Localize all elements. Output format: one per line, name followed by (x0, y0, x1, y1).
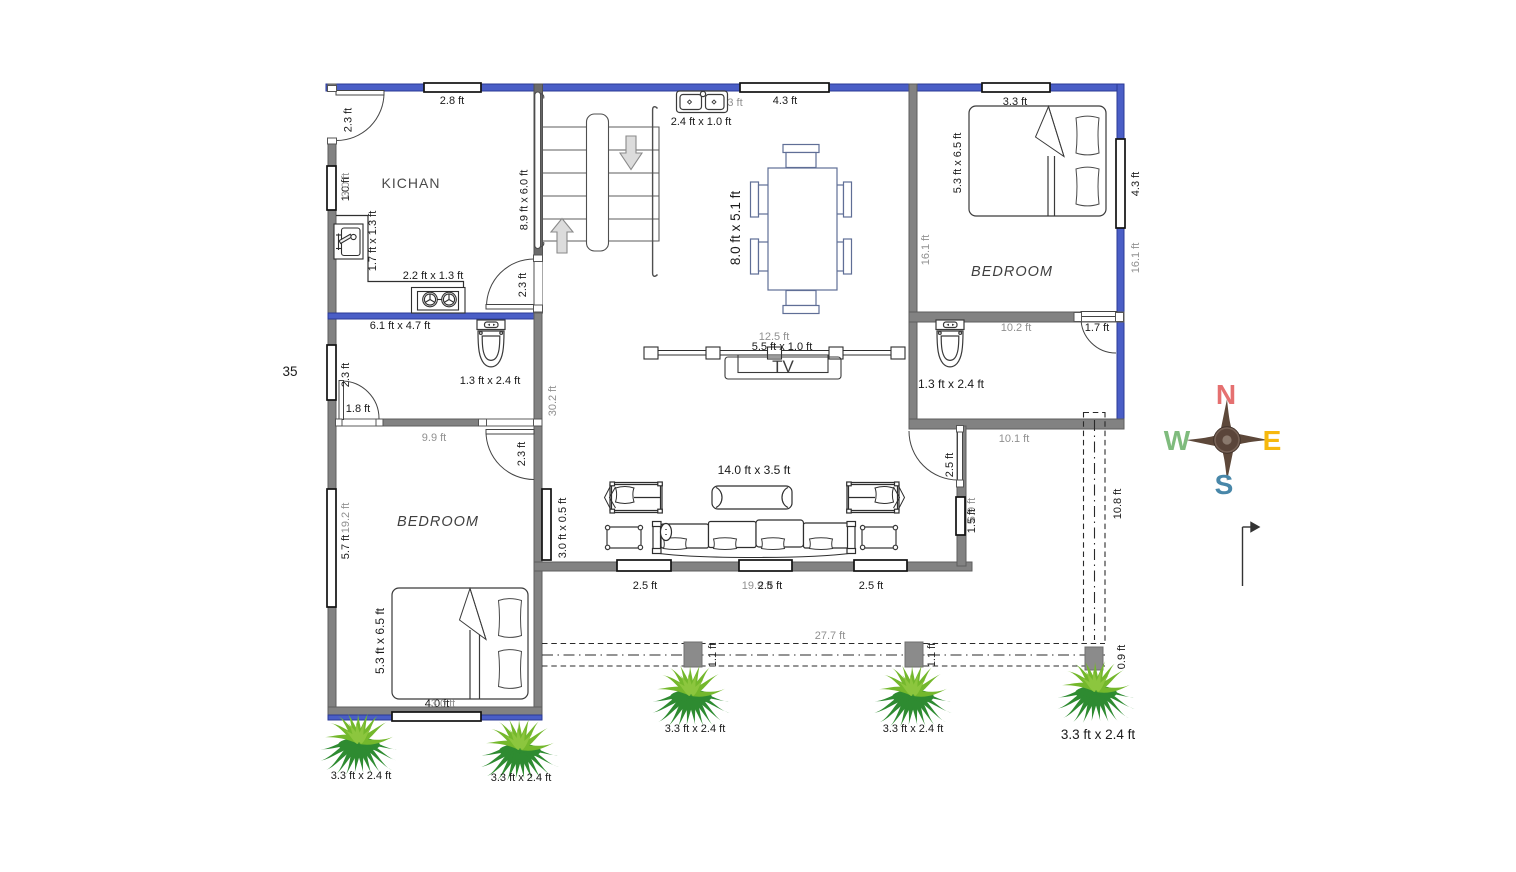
svg-text:3.0 ft: 3.0 ft (340, 173, 352, 197)
svg-text:4.3 ft: 4.3 ft (1130, 172, 1142, 196)
svg-text:5.3 ft x 6.5 ft: 5.3 ft x 6.5 ft (952, 133, 964, 194)
svg-text:30.2 ft: 30.2 ft (547, 386, 559, 417)
svg-text:3.3 ft x 2.4 ft: 3.3 ft x 2.4 ft (1061, 727, 1136, 742)
svg-text:3.3 ft x 2.4 ft: 3.3 ft x 2.4 ft (491, 772, 552, 784)
svg-text:1.1 ft: 1.1 ft (926, 643, 938, 667)
svg-text:16.1 ft: 16.1 ft (1130, 243, 1142, 274)
svg-text:3.0 ft x 0.5 ft: 3.0 ft x 0.5 ft (557, 498, 569, 559)
svg-text:2.2 ft x 1.3 ft: 2.2 ft x 1.3 ft (403, 270, 464, 282)
svg-text:BEDROOM: BEDROOM (397, 514, 479, 530)
svg-text:19.2 ft: 19.2 ft (340, 503, 352, 534)
svg-text:1.7 ft x 1.3 ft: 1.7 ft x 1.3 ft (367, 211, 379, 272)
svg-text:1.8 ft: 1.8 ft (346, 403, 370, 415)
svg-text:BEDROOM: BEDROOM (971, 264, 1053, 280)
svg-text:3.3 ft x 2.4 ft: 3.3 ft x 2.4 ft (883, 723, 944, 735)
svg-text:2.4 ft x 1.0 ft: 2.4 ft x 1.0 ft (671, 116, 732, 128)
svg-text:N: N (1216, 379, 1236, 410)
svg-text:2.3 ft: 2.3 ft (343, 108, 355, 132)
svg-text:2.8 ft: 2.8 ft (440, 95, 464, 107)
svg-text:1.7 ft: 1.7 ft (1085, 322, 1109, 334)
svg-text:10.8 ft: 10.8 ft (1112, 489, 1124, 520)
svg-text:TV: TV (772, 357, 794, 376)
svg-text:0.9 ft: 0.9 ft (1116, 645, 1128, 669)
svg-text:5.5 ft x 1.0 ft: 5.5 ft x 1.0 ft (752, 341, 813, 353)
svg-text:S: S (1215, 469, 1234, 500)
svg-text:E: E (1263, 425, 1282, 456)
svg-text:8.0 ft x 5.1 ft: 8.0 ft x 5.1 ft (728, 191, 743, 266)
svg-text:1.3 ft x 2.4 ft: 1.3 ft x 2.4 ft (460, 375, 521, 387)
svg-text:5.3 ft x 6.5 ft: 5.3 ft x 6.5 ft (373, 607, 387, 674)
svg-text:8.9 ft x 6.0 ft: 8.9 ft x 6.0 ft (519, 170, 531, 231)
svg-text:35: 35 (282, 364, 297, 379)
svg-text:10.2 ft: 10.2 ft (1001, 322, 1032, 334)
svg-text:1.1 ft: 1.1 ft (707, 643, 719, 667)
svg-text:2.5 ft: 2.5 ft (859, 580, 883, 592)
svg-text:5.7 ft: 5.7 ft (340, 535, 352, 559)
svg-text:2.3 ft: 2.3 ft (340, 363, 352, 387)
svg-text:9.9 ft: 9.9 ft (422, 432, 446, 444)
svg-text:KICHAN: KICHAN (382, 175, 441, 191)
svg-text:27.7 ft: 27.7 ft (815, 630, 846, 642)
svg-text:2.5 ft: 2.5 ft (758, 580, 782, 592)
svg-text:W: W (1164, 425, 1191, 456)
svg-text:2.3 ft: 2.3 ft (517, 273, 529, 297)
svg-text:3.0 ft: 3.0 ft (431, 698, 455, 710)
svg-text:3.3 ft: 3.3 ft (1003, 96, 1027, 108)
svg-text:1.3 ft x 2.4 ft: 1.3 ft x 2.4 ft (918, 377, 985, 391)
svg-text:1.5 ft: 1.5 ft (966, 509, 978, 533)
svg-text:14.0 ft x 3.5 ft: 14.0 ft x 3.5 ft (718, 463, 791, 477)
svg-text:2.5 ft: 2.5 ft (633, 580, 657, 592)
svg-text:3 ft: 3 ft (727, 97, 742, 109)
svg-text:10.1 ft: 10.1 ft (999, 433, 1030, 445)
svg-text:3.3 ft x 2.4 ft: 3.3 ft x 2.4 ft (331, 770, 392, 782)
svg-text:2.5 ft: 2.5 ft (944, 453, 956, 477)
svg-text:3.3 ft x 2.4 ft: 3.3 ft x 2.4 ft (665, 723, 726, 735)
svg-text:2.3 ft: 2.3 ft (516, 442, 528, 466)
svg-text:16.1 ft: 16.1 ft (920, 235, 932, 266)
svg-text:6.1 ft x 4.7 ft: 6.1 ft x 4.7 ft (370, 320, 431, 332)
svg-text:4.3 ft: 4.3 ft (773, 95, 797, 107)
